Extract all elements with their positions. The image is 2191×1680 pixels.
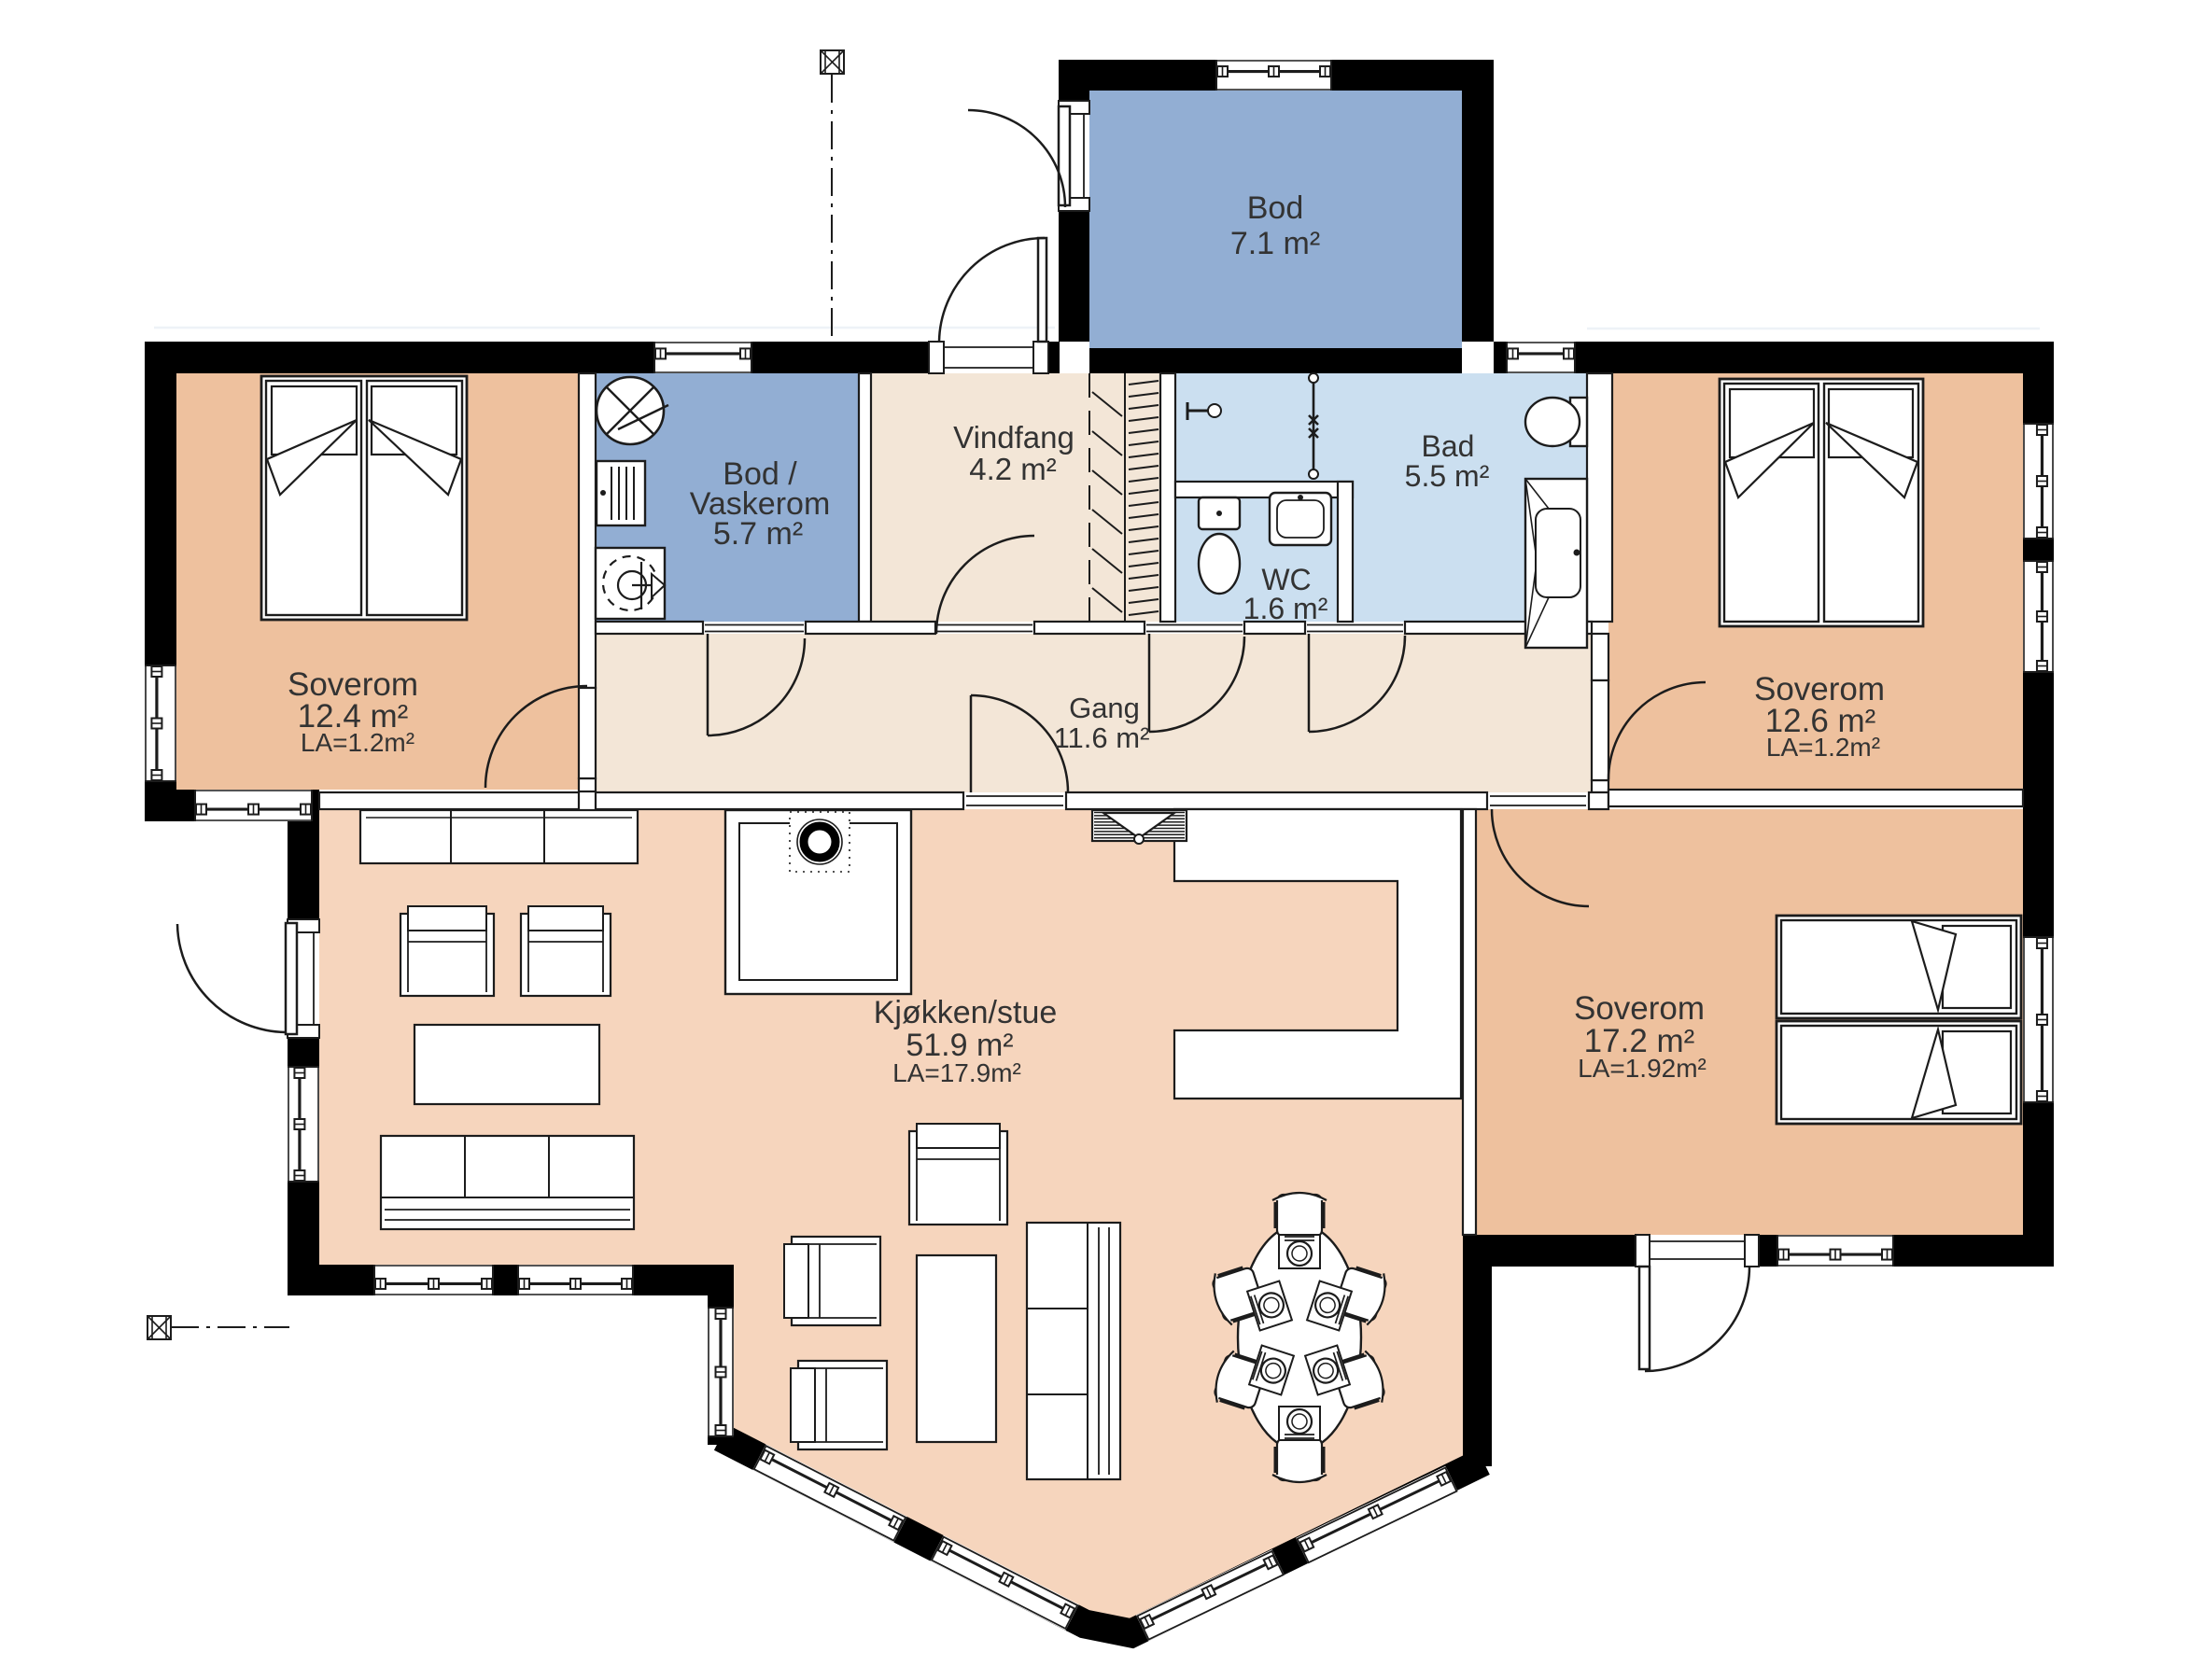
svg-text:LA=1.92m²: LA=1.92m² [1578,1054,1706,1083]
svg-text:Gang: Gang [1069,692,1140,724]
svg-text:Soverom: Soverom [1574,990,1705,1027]
svg-text:Bad: Bad [1422,429,1475,463]
svg-text:LA=17.9m²: LA=17.9m² [892,1058,1021,1087]
svg-text:1.6 m²: 1.6 m² [1243,592,1328,625]
svg-text:Bod: Bod [1247,190,1304,226]
svg-text:4.2 m²: 4.2 m² [969,452,1057,486]
svg-text:Vindfang: Vindfang [953,420,1074,455]
svg-text:5.7 m²: 5.7 m² [713,516,803,552]
svg-text:LA=1.2m²: LA=1.2m² [1766,733,1880,762]
svg-text:5.5 m²: 5.5 m² [1405,459,1490,493]
svg-text:LA=1.2m²: LA=1.2m² [301,728,414,757]
svg-text:11.6 m²: 11.6 m² [1054,721,1150,754]
svg-text:7.1 m²: 7.1 m² [1230,226,1320,261]
svg-text:Kjøkken/stue: Kjøkken/stue [874,995,1058,1030]
